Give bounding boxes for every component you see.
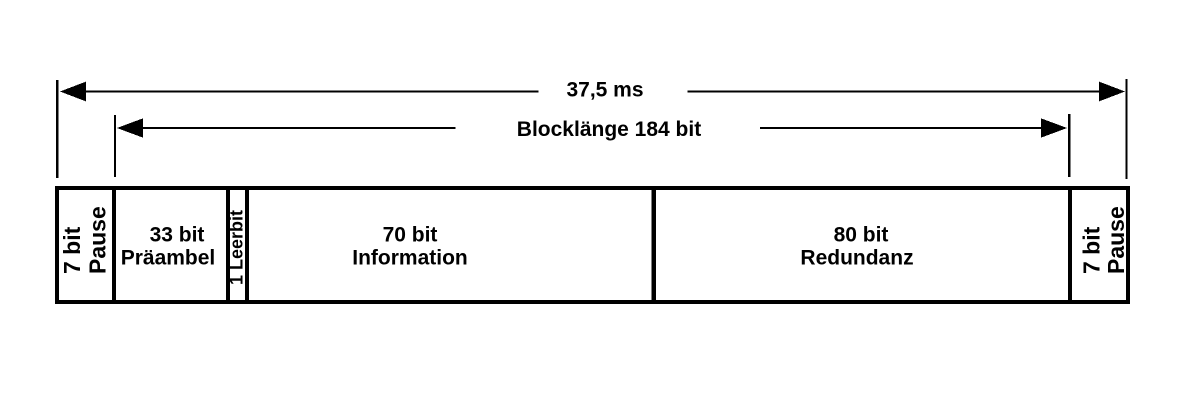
svg-text:Redundanz: Redundanz: [800, 247, 913, 270]
svg-text:Pause: Pause: [85, 206, 111, 274]
svg-text:70 bit: 70 bit: [383, 224, 438, 247]
svg-text:Präambel: Präambel: [121, 247, 216, 270]
svg-text:80 bit: 80 bit: [834, 224, 889, 247]
svg-text:Blocklänge 184 bit: Blocklänge 184 bit: [517, 118, 701, 141]
svg-text:Information: Information: [352, 247, 468, 270]
svg-text:37,5 ms: 37,5 ms: [566, 79, 643, 102]
svg-text:Pause: Pause: [1103, 206, 1129, 274]
svg-text:1 Leerbit: 1 Leerbit: [227, 210, 247, 285]
svg-text:7 bit: 7 bit: [1079, 226, 1105, 274]
svg-text:33 bit: 33 bit: [150, 224, 205, 247]
svg-text:7 bit: 7 bit: [59, 226, 85, 274]
